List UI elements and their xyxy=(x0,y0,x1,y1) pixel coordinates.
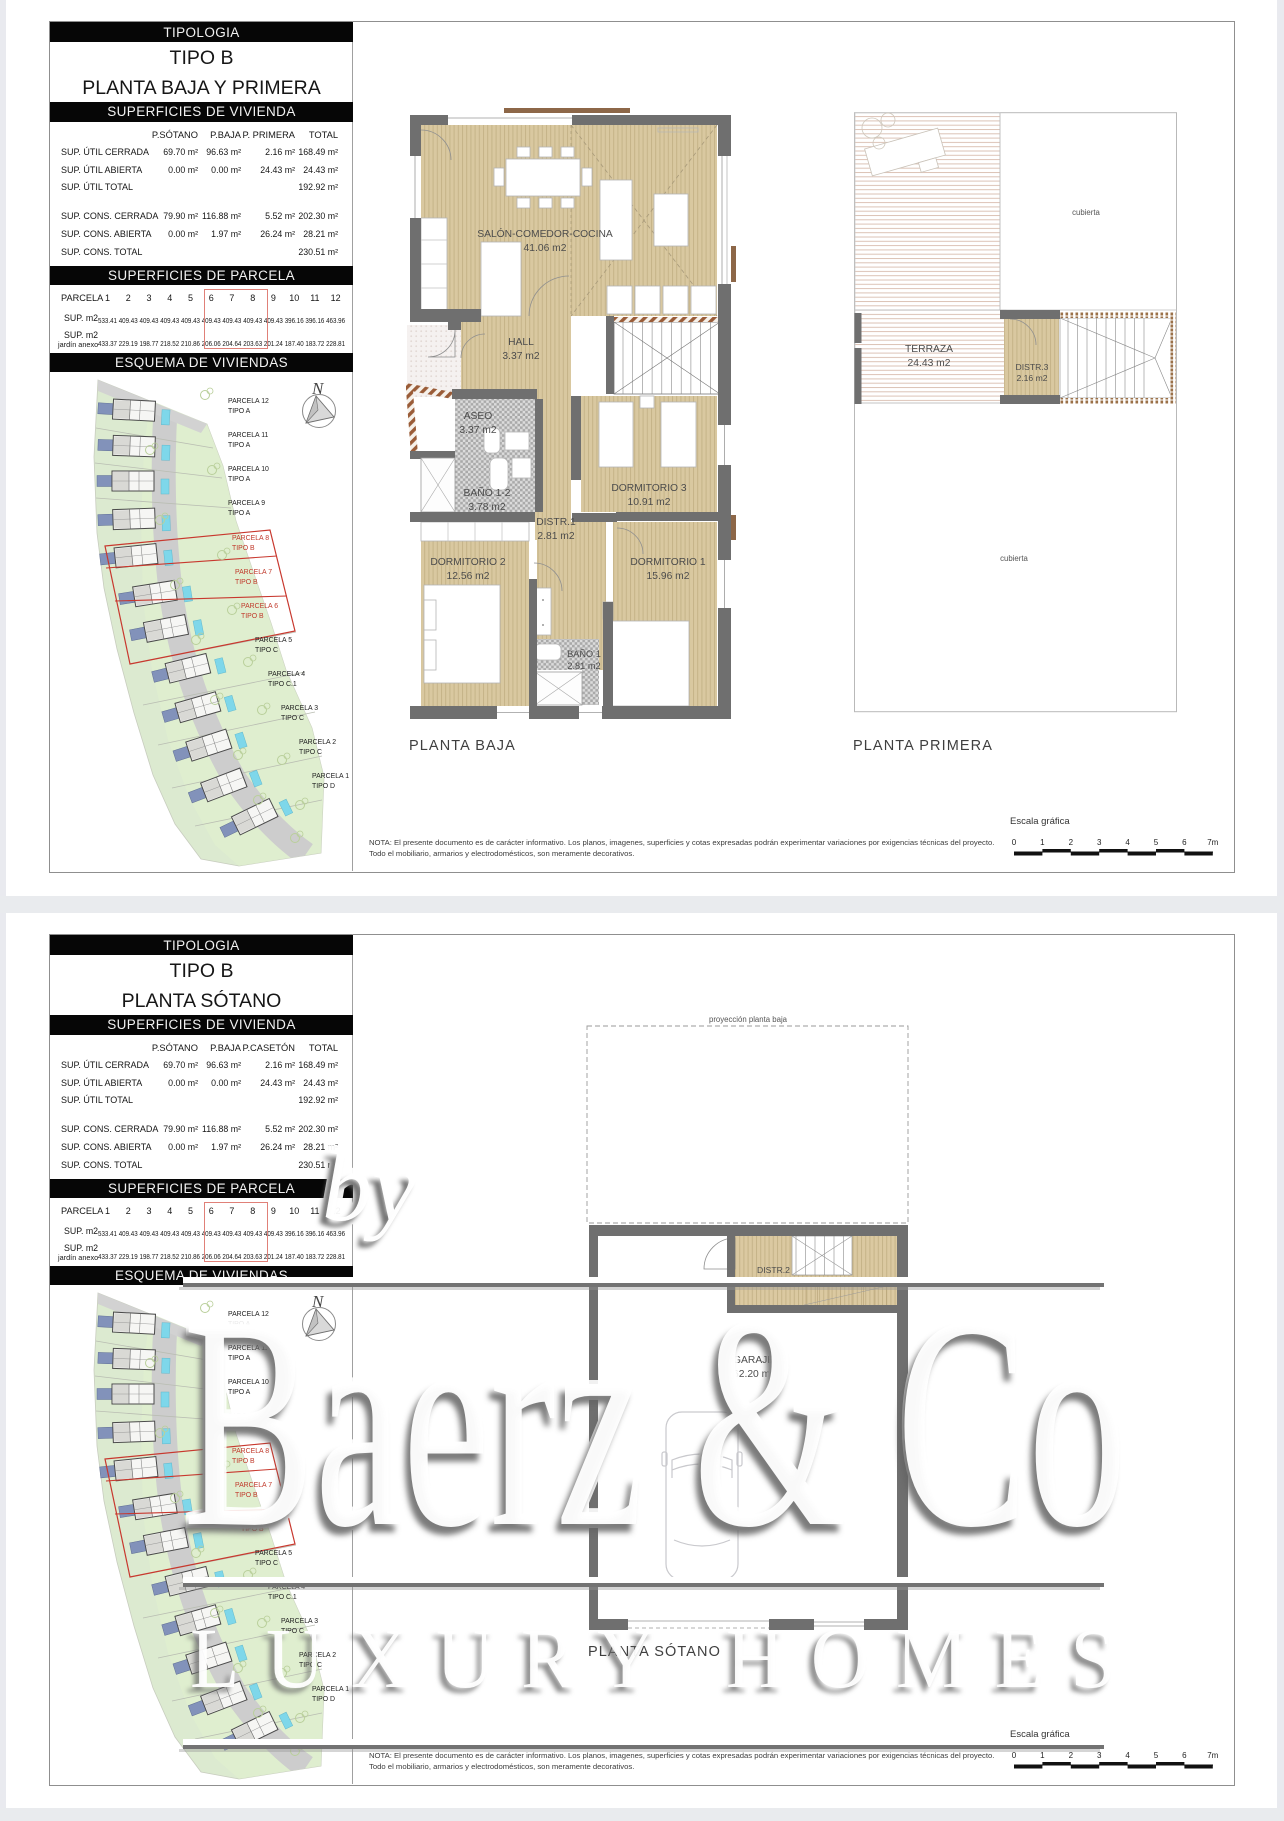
svg-text:LUXURY HOMES: LUXURY HOMES xyxy=(190,1610,1142,1706)
